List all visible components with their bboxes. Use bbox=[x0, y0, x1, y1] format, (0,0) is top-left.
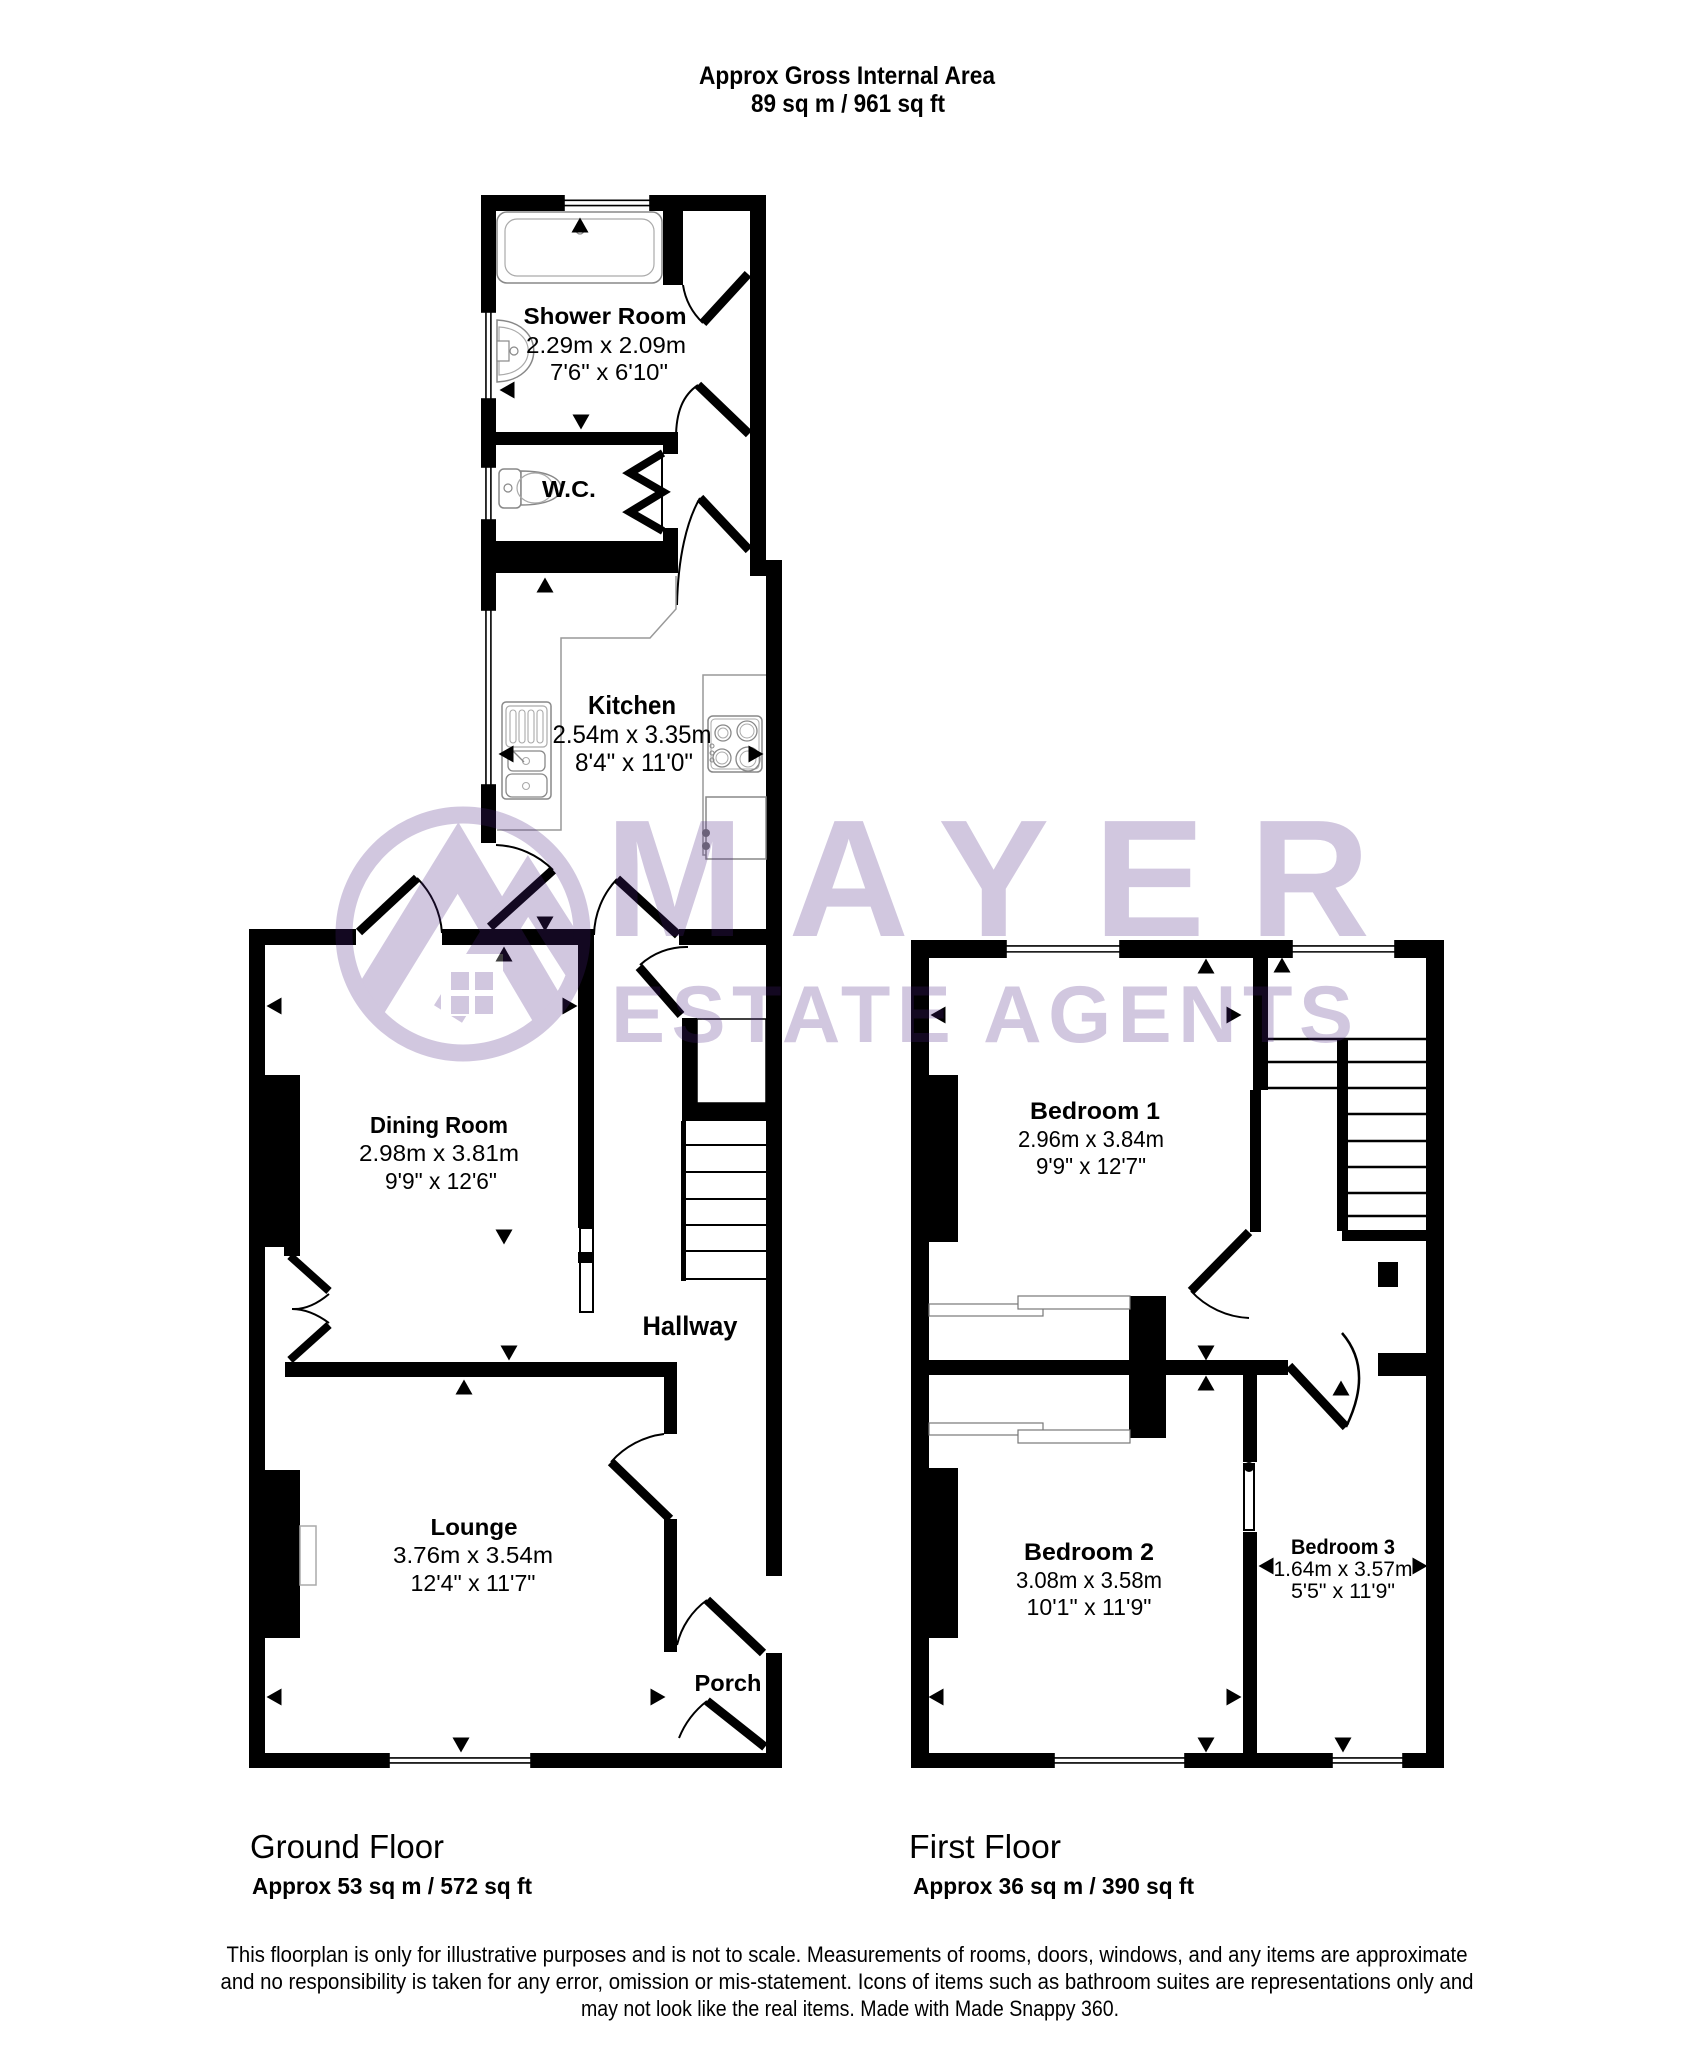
svg-text:Shower Room: Shower Room bbox=[524, 303, 687, 329]
svg-text:First Floor: First Floor bbox=[909, 1828, 1061, 1865]
svg-text:9'9" x 12'6": 9'9" x 12'6" bbox=[385, 1168, 497, 1194]
svg-text:W.C.: W.C. bbox=[542, 476, 596, 502]
svg-text:MAYER: MAYER bbox=[605, 786, 1370, 972]
svg-text:2.54m x 3.35m: 2.54m x 3.35m bbox=[553, 721, 712, 749]
svg-text:8'4" x 11'0": 8'4" x 11'0" bbox=[575, 749, 693, 777]
svg-text:89 sq m / 961 sq ft: 89 sq m / 961 sq ft bbox=[751, 90, 946, 118]
svg-text:Porch: Porch bbox=[695, 1670, 762, 1696]
svg-text:This floorplan is only for ill: This floorplan is only for illustrative … bbox=[227, 1942, 1468, 1967]
svg-text:1.64m x 3.57m: 1.64m x 3.57m bbox=[1274, 1558, 1413, 1581]
svg-text:Bedroom 2: Bedroom 2 bbox=[1024, 1539, 1154, 1566]
svg-text:Hallway: Hallway bbox=[643, 1311, 738, 1341]
svg-text:2.96m x 3.84m: 2.96m x 3.84m bbox=[1018, 1126, 1164, 1152]
svg-text:5'5" x 11'9": 5'5" x 11'9" bbox=[1291, 1580, 1395, 1603]
svg-text:Lounge: Lounge bbox=[431, 1514, 518, 1540]
svg-text:Approx 36 sq m / 390 sq ft: Approx 36 sq m / 390 sq ft bbox=[913, 1873, 1194, 1899]
svg-text:10'1" x 11'9": 10'1" x 11'9" bbox=[1027, 1594, 1152, 1620]
svg-text:9'9" x 12'7": 9'9" x 12'7" bbox=[1036, 1153, 1146, 1179]
svg-text:and no responsibility is taken: and no responsibility is taken for any e… bbox=[221, 1969, 1474, 1994]
svg-text:7'6" x 6'10": 7'6" x 6'10" bbox=[550, 359, 668, 385]
svg-text:12'4" x 11'7": 12'4" x 11'7" bbox=[411, 1570, 536, 1596]
svg-text:Approx Gross Internal Area: Approx Gross Internal Area bbox=[699, 62, 996, 90]
svg-text:Bedroom 1: Bedroom 1 bbox=[1030, 1098, 1160, 1125]
svg-text:Dining Room: Dining Room bbox=[370, 1112, 508, 1138]
svg-text:2.29m x 2.09m: 2.29m x 2.09m bbox=[526, 332, 686, 358]
svg-text:Ground Floor: Ground Floor bbox=[250, 1828, 444, 1865]
svg-text:3.76m x 3.54m: 3.76m x 3.54m bbox=[393, 1542, 553, 1568]
svg-text:Bedroom 3: Bedroom 3 bbox=[1291, 1536, 1395, 1559]
svg-text:Approx 53 sq m / 572 sq ft: Approx 53 sq m / 572 sq ft bbox=[252, 1873, 532, 1899]
svg-text:2.98m x 3.81m: 2.98m x 3.81m bbox=[359, 1140, 519, 1166]
svg-text:may not look like the real ite: may not look like the real items. Made w… bbox=[581, 1996, 1119, 2021]
svg-text:Kitchen: Kitchen bbox=[588, 690, 676, 720]
svg-text:3.08m x 3.58m: 3.08m x 3.58m bbox=[1016, 1567, 1162, 1593]
